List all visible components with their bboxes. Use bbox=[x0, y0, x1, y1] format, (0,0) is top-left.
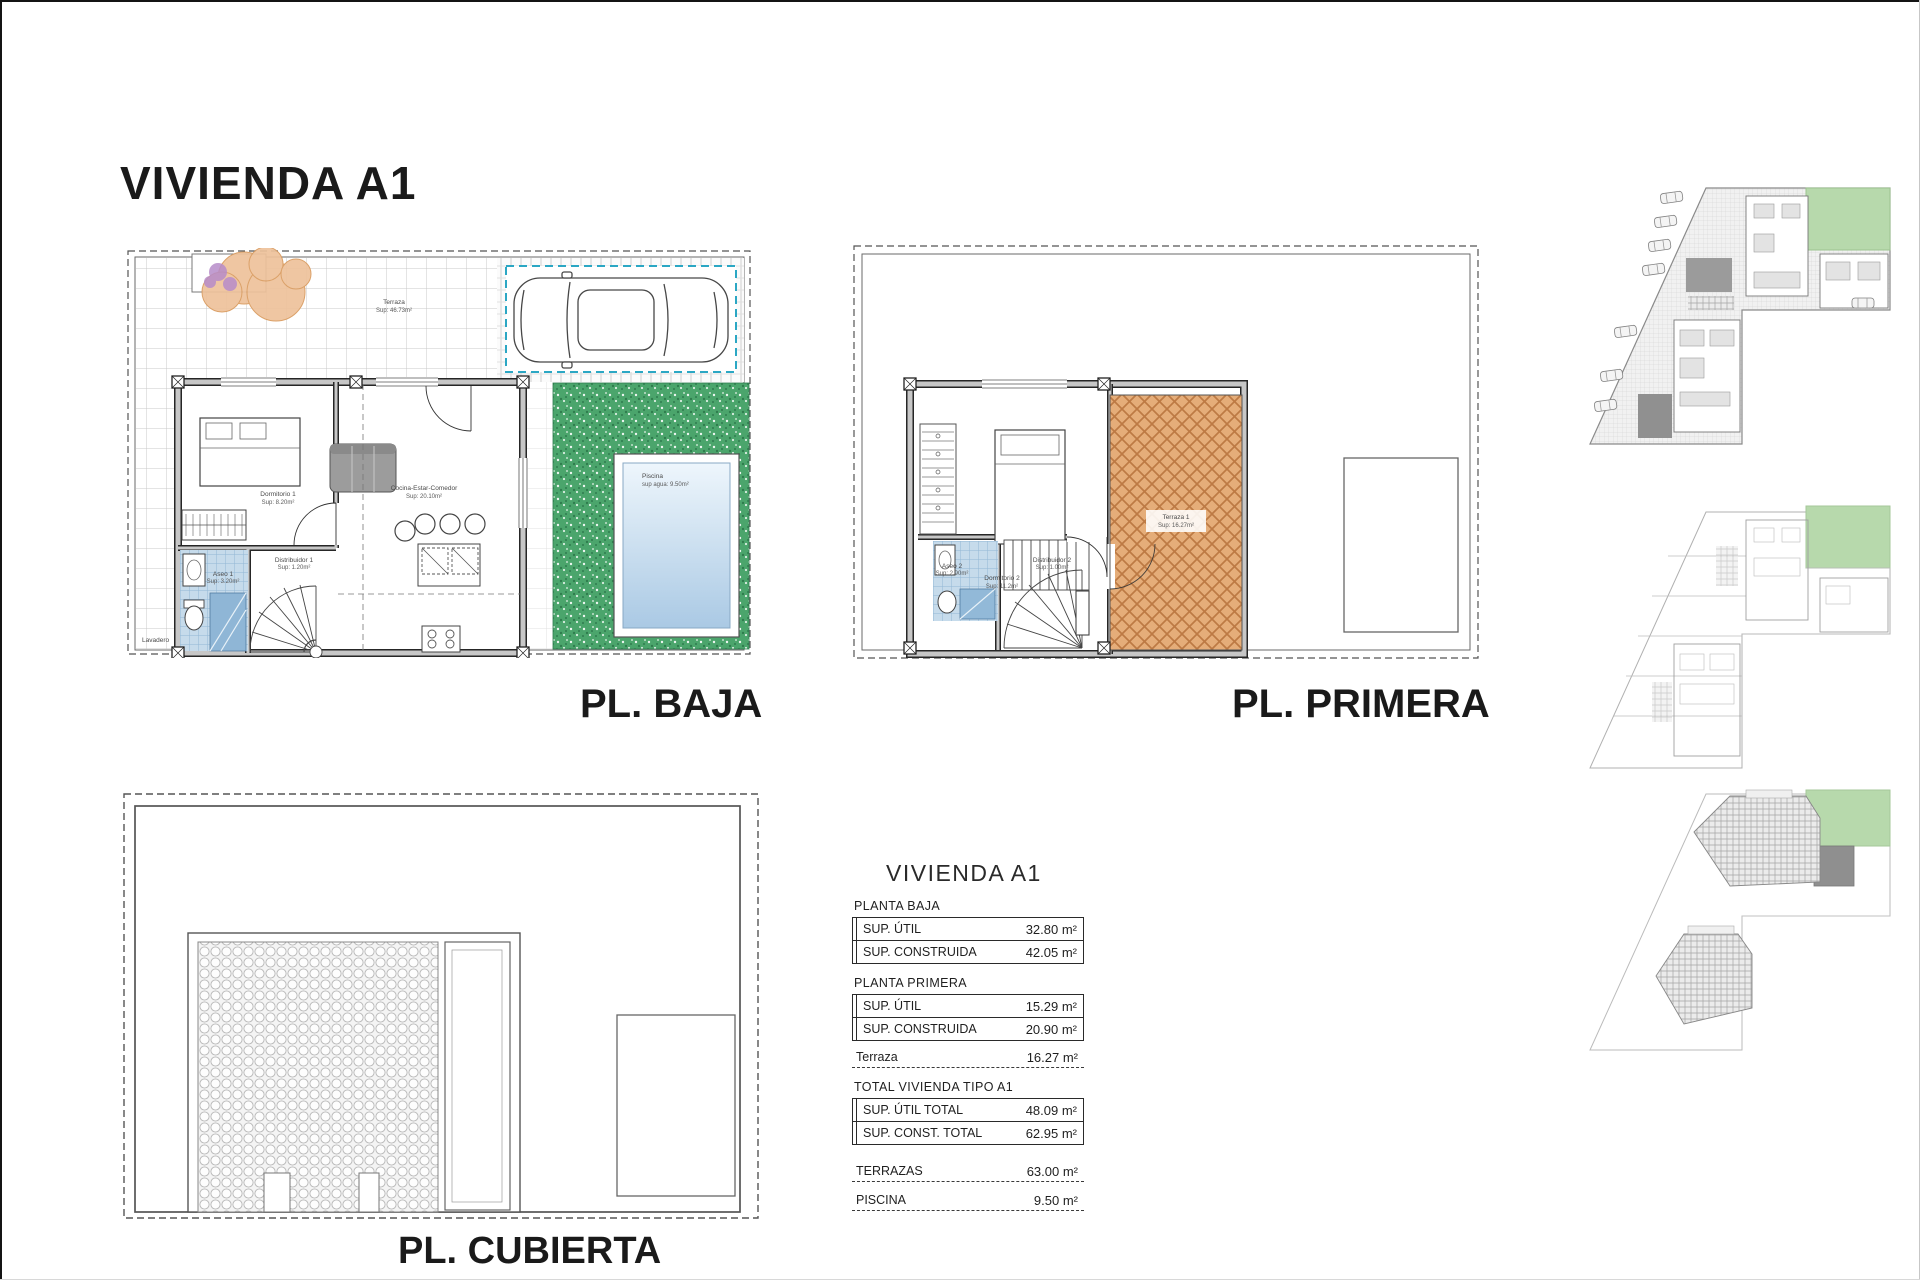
site-key-plan-ground bbox=[1568, 162, 1912, 462]
row-label: SUP. ÚTIL bbox=[863, 999, 921, 1013]
aseo2-sup: Sup: 2.90m² bbox=[936, 571, 969, 577]
distribuidor1-sup: Sup: 1.20m² bbox=[278, 565, 311, 571]
roof-notch-2 bbox=[359, 1173, 379, 1212]
table-row: SUP. ÚTIL 32.80 m² bbox=[853, 918, 1083, 940]
site-key-plan-first bbox=[1568, 486, 1912, 786]
bed bbox=[200, 418, 300, 486]
bathroom-1 bbox=[180, 550, 248, 651]
table-row: SUP. ÚTIL TOTAL 48.09 m² bbox=[853, 1099, 1083, 1121]
terraza-sup: Sup: 46.73m² bbox=[376, 308, 412, 314]
terraza-label: Terraza bbox=[383, 299, 405, 306]
row-value: 48.09 m² bbox=[1026, 1103, 1077, 1118]
driveway-dark bbox=[1638, 394, 1672, 438]
table-row: SUP. CONSTRUIDA 20.90 m² bbox=[853, 1017, 1083, 1040]
stove bbox=[422, 626, 460, 652]
lavadero-label: Lavadero bbox=[142, 637, 169, 644]
plan-baja-drawing: Terraza Sup: 46.73m² Piscina sup agua: 9… bbox=[126, 248, 754, 658]
row-label: SUP. ÚTIL TOTAL bbox=[863, 1103, 963, 1117]
roof-strip bbox=[445, 942, 510, 1210]
cocina-sup: Sup: 20.10m² bbox=[406, 494, 442, 500]
piscina-total-row: PISCINA 9.50 m² bbox=[852, 1190, 1084, 1211]
summary-title: VIVIENDA A1 bbox=[886, 860, 1084, 887]
row-value: 62.95 m² bbox=[1026, 1126, 1077, 1141]
plan-cubierta-drawing bbox=[122, 792, 762, 1222]
terrazas-total-row: TERRAZAS 63.00 m² bbox=[852, 1161, 1084, 1182]
ramp-dark bbox=[1686, 258, 1732, 292]
summary-box-primera: SUP. ÚTIL 15.29 m² SUP. CONSTRUIDA 20.90… bbox=[852, 994, 1084, 1041]
plan-primera-drawing: SH bbox=[852, 244, 1480, 660]
plan-sheet: VIVIENDA A1 bbox=[0, 0, 1920, 1280]
table-row: SUP. CONSTRUIDA 42.05 m² bbox=[853, 940, 1083, 963]
pool-roof-outline bbox=[617, 1015, 735, 1196]
row-value: 16.27 m² bbox=[1027, 1050, 1078, 1065]
dormitorio2-sup: Sup: 11.2m² bbox=[986, 584, 1018, 590]
roof-tab-2 bbox=[1688, 926, 1734, 934]
aseo1-sup: Sup: 3.20m² bbox=[207, 579, 240, 585]
roof-tiles bbox=[198, 942, 438, 1212]
table-row: SUP. ÚTIL 15.29 m² bbox=[853, 995, 1083, 1017]
row-value: 15.29 m² bbox=[1026, 999, 1077, 1014]
distribuidor1-label: Distribuidor 1 bbox=[275, 557, 314, 564]
row-value: 63.00 m² bbox=[1027, 1164, 1078, 1179]
dormitorio2-label: Dormitorio 2 bbox=[984, 575, 1020, 582]
wardrobe-strip bbox=[920, 424, 956, 534]
area-summary-table: VIVIENDA A1 PLANTA BAJA SUP. ÚTIL 32.80 … bbox=[852, 860, 1084, 1211]
distribuidor2-sup: Sup: 1.00m² bbox=[1036, 565, 1069, 571]
cocina-label: Cocina-Estar-Comedor bbox=[391, 485, 458, 492]
sheet-left-border bbox=[0, 0, 2, 1280]
row-value: 32.80 m² bbox=[1026, 922, 1077, 937]
distribuidor2-label: Distribuidor 2 bbox=[1033, 557, 1072, 564]
row-label: Terraza bbox=[856, 1050, 898, 1064]
dormitorio1-label: Dormitorio 1 bbox=[260, 491, 296, 498]
row-label: SUP. CONSTRUIDA bbox=[863, 1022, 977, 1036]
page-title: VIVIENDA A1 bbox=[120, 156, 416, 210]
sheet-top-border bbox=[0, 0, 1920, 2]
car-icon bbox=[514, 272, 728, 368]
piscina-sup: sup agua: 9.50m² bbox=[642, 482, 689, 488]
aseo2-label: Aseo 2 bbox=[942, 563, 963, 570]
summary-box-total: SUP. ÚTIL TOTAL 48.09 m² SUP. CONST. TOT… bbox=[852, 1098, 1084, 1145]
row-value: 20.90 m² bbox=[1026, 1022, 1077, 1037]
terraza1-label: Terraza 1 bbox=[1162, 514, 1189, 521]
garden: Piscina sup agua: 9.50m² bbox=[553, 383, 749, 649]
parking-area bbox=[497, 258, 744, 382]
highlight-unit-a1 bbox=[1806, 506, 1890, 568]
row-value: 42.05 m² bbox=[1026, 945, 1077, 960]
aseo1-label: Aseo 1 bbox=[213, 571, 234, 578]
kitchen-counter bbox=[418, 544, 480, 586]
label-pl-baja: PL. BAJA bbox=[580, 682, 762, 727]
stair-hatch-1 bbox=[1716, 546, 1738, 586]
site-key-plan-roof bbox=[1568, 788, 1912, 1094]
row-value: 9.50 m² bbox=[1034, 1193, 1078, 1208]
summary-box-baja: SUP. ÚTIL 32.80 m² SUP. CONSTRUIDA 42.05… bbox=[852, 917, 1084, 964]
terraza-row: Terraza 16.27 m² bbox=[852, 1047, 1084, 1068]
roof-tab-1 bbox=[1746, 790, 1792, 798]
row-label: SUP. ÚTIL bbox=[863, 922, 921, 936]
piscina-label: Piscina bbox=[642, 473, 663, 480]
table-row: SUP. CONST. TOTAL 62.95 m² bbox=[853, 1121, 1083, 1144]
heading-planta-primera: PLANTA PRIMERA bbox=[854, 976, 1084, 990]
label-pl-primera: PL. PRIMERA bbox=[1232, 682, 1490, 727]
stair-hatch-2 bbox=[1652, 682, 1672, 722]
stair-strip bbox=[1688, 296, 1734, 310]
row-label: PISCINA bbox=[856, 1193, 906, 1207]
terraza1-sup: Sup: 16.27m² bbox=[1158, 523, 1194, 529]
dormitorio1-sup: Sup: 8.20m² bbox=[262, 500, 295, 506]
row-label: TERRAZAS bbox=[856, 1164, 923, 1178]
roof-notch-1 bbox=[264, 1173, 290, 1212]
wardrobe bbox=[182, 510, 246, 540]
heading-total: TOTAL VIVIENDA TIPO A1 bbox=[854, 1080, 1084, 1094]
terraza-label-box: Terraza 1 Sup: 16.27m² bbox=[1146, 510, 1206, 532]
label-pl-cubierta: PL. CUBIERTA bbox=[398, 1230, 661, 1273]
row-label: SUP. CONST. TOTAL bbox=[863, 1126, 982, 1140]
highlight-unit-a1 bbox=[1806, 188, 1890, 250]
row-label: SUP. CONSTRUIDA bbox=[863, 945, 977, 959]
heading-planta-baja: PLANTA BAJA bbox=[854, 899, 1084, 913]
pool-below-outline bbox=[1344, 458, 1458, 632]
bed bbox=[995, 430, 1065, 544]
